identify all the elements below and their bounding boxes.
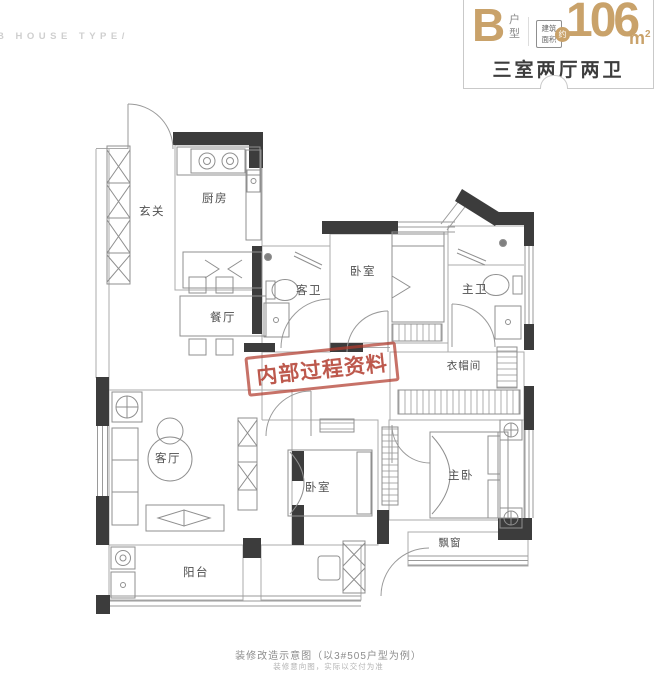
floor-plan: 玄关 厨房 餐厅 客卫 卧室 主卫 衣帽间 客厅 卧室 主卧 飘窗 阳台 [0,0,657,688]
footer-caption-primary: 装修改造示意图（以3#505户型为例） [0,647,657,662]
room-label-guest-bath: 客卫 [296,283,322,297]
room-label-bay-window: 飘窗 [439,536,462,549]
footer-caption-secondary: 装修意向图，实际以交付为准 [0,661,657,672]
floorplan-flyer: B HOUSE TYPE/ B 户型 建筑 面积 约 106 m2 三室两厅两卫 [0,0,657,688]
room-label-living: 客厅 [155,451,181,465]
room-label-dining: 餐厅 [210,310,236,324]
room-label-balcony: 阳台 [183,565,209,579]
room-label-cloakroom: 衣帽间 [447,359,482,372]
room-label-kitchen: 厨房 [202,192,228,205]
room-label-master-bath: 主卫 [462,283,488,296]
room-label-master-bedroom: 主卧 [448,469,474,482]
room-label-bedroom-north: 卧室 [350,264,376,278]
room-label-bedroom-south: 卧室 [305,480,331,494]
approx-badge: 约 [555,27,570,42]
room-label-entry: 玄关 [139,204,165,218]
